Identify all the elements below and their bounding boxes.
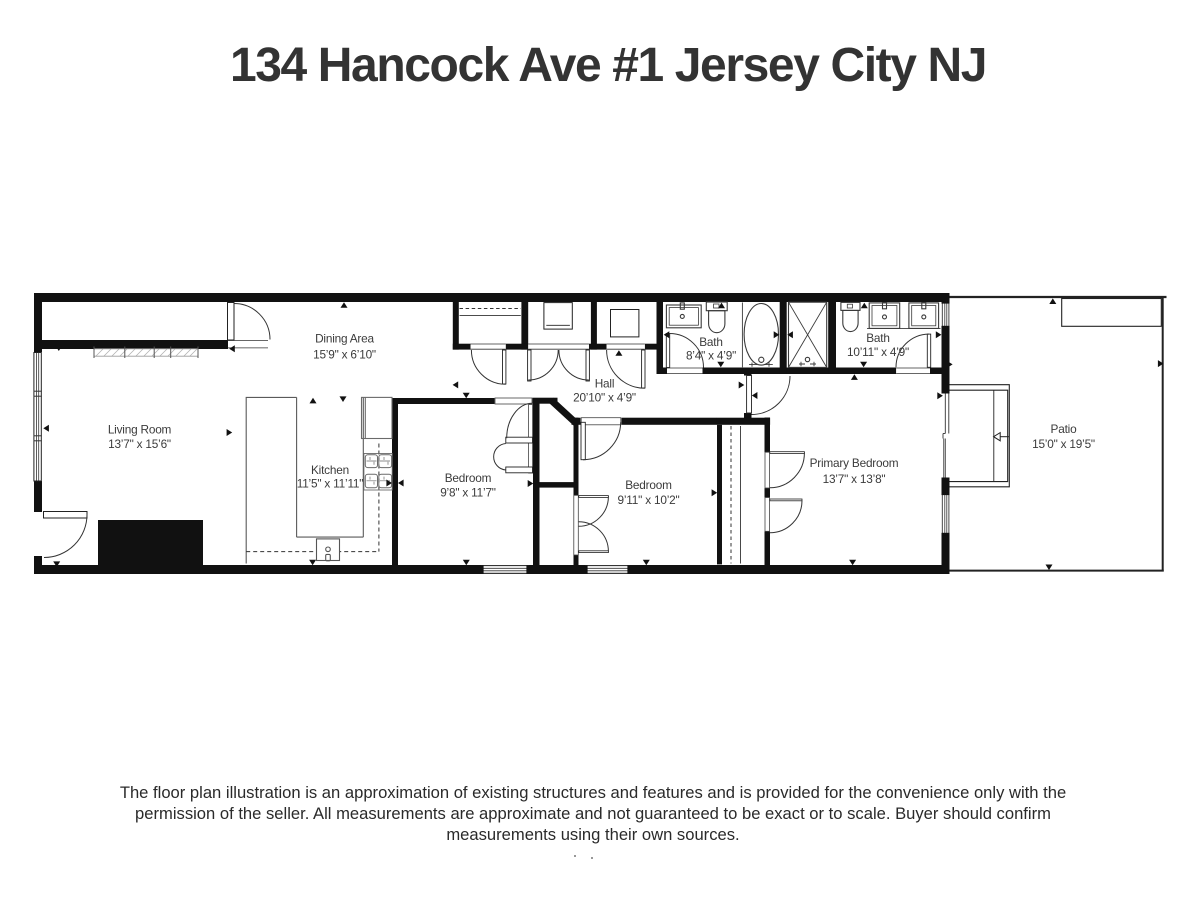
svg-text:Patio: Patio (1051, 422, 1078, 436)
svg-text:Primary Bedroom: Primary Bedroom (810, 456, 899, 470)
svg-text:Living Room: Living Room (108, 422, 172, 436)
svg-text:13’7" x 13’8": 13’7" x 13’8" (823, 472, 886, 486)
svg-text:13’7" x 15’6": 13’7" x 15’6" (108, 437, 171, 451)
svg-text:Bath: Bath (866, 331, 889, 345)
svg-text:11’5" x 11’11": 11’5" x 11’11" (297, 476, 364, 490)
svg-text:Dining Area: Dining Area (315, 331, 374, 345)
svg-text:9’11" x 10’2": 9’11" x 10’2" (618, 493, 680, 507)
svg-text:8’4" x 4’9": 8’4" x 4’9" (686, 349, 736, 363)
svg-text:15’0" x 19’5": 15’0" x 19’5" (1032, 437, 1095, 451)
svg-text:20’10" x 4’9": 20’10" x 4’9" (573, 391, 636, 405)
svg-text:Kitchen: Kitchen (311, 463, 349, 477)
svg-text:15’9" x 6’10": 15’9" x 6’10" (313, 348, 376, 362)
svg-text:Bedroom: Bedroom (625, 478, 672, 492)
svg-text:10’11" x 4’9": 10’11" x 4’9" (847, 345, 909, 359)
svg-text:Bath: Bath (699, 335, 722, 349)
svg-text:9’8" x 11’7": 9’8" x 11’7" (440, 485, 496, 499)
svg-text:Hall: Hall (595, 376, 615, 390)
svg-text:Bedroom: Bedroom (445, 471, 492, 485)
